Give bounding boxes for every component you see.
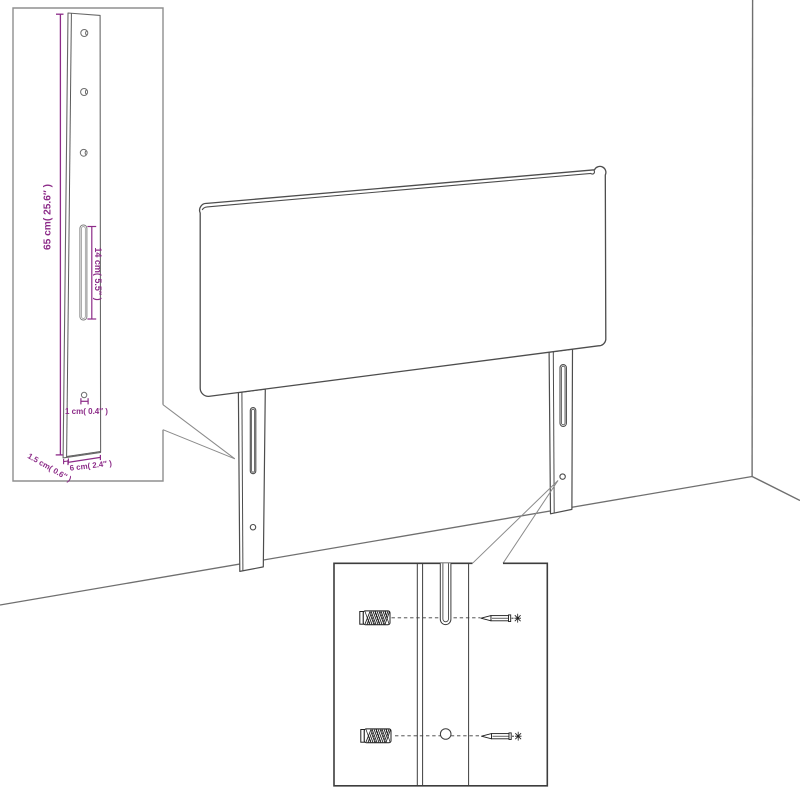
svg-text:14 cm( 5.5″ ): 14 cm( 5.5″ )	[93, 247, 103, 300]
svg-text:65 cm( 25.6″ ): 65 cm( 25.6″ )	[43, 184, 54, 250]
svg-text:1 cm( 0.4″ ): 1 cm( 0.4″ )	[65, 407, 108, 416]
